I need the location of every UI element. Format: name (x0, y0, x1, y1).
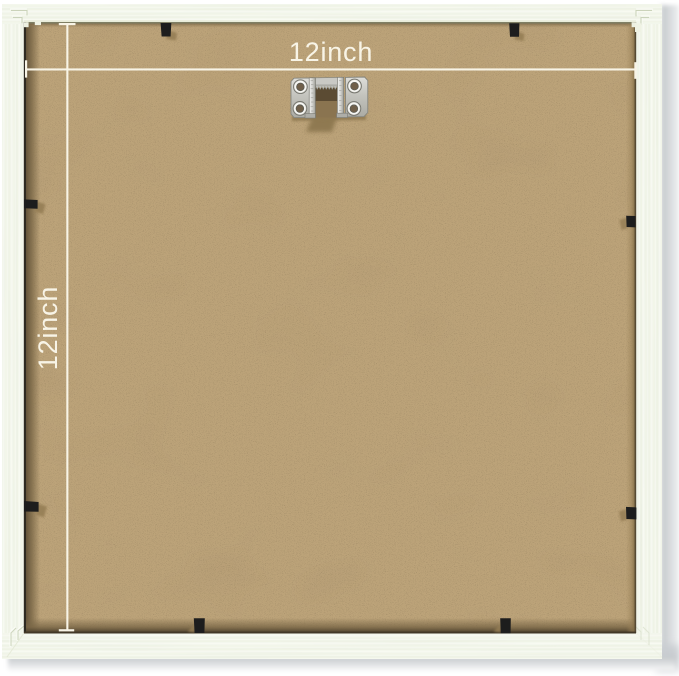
svg-text:12inch: 12inch (33, 286, 63, 370)
svg-text:12inch: 12inch (289, 37, 373, 67)
